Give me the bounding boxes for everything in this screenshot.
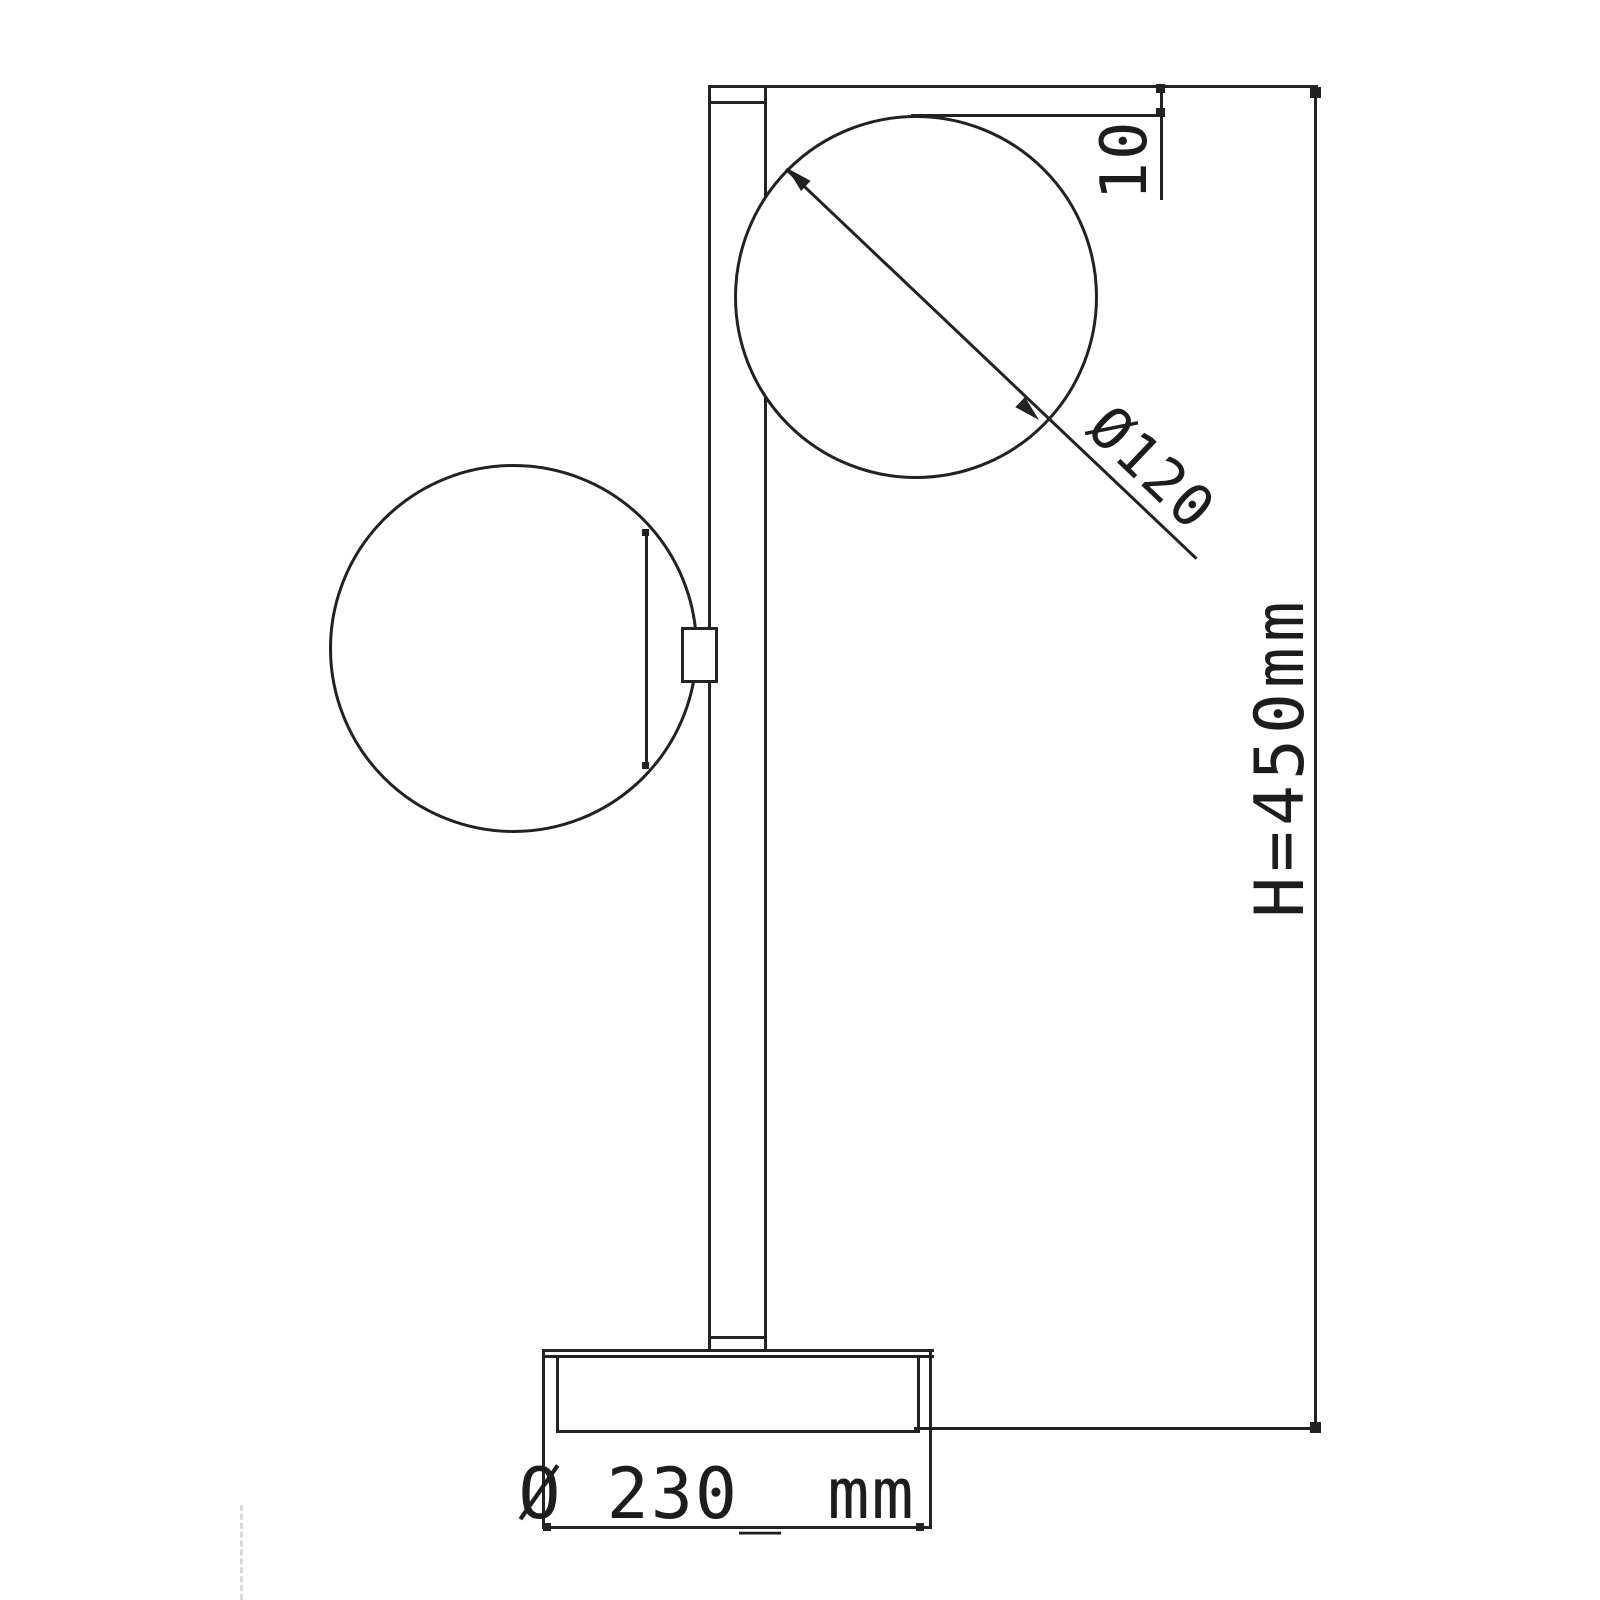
lower-globe [329, 464, 698, 833]
base-body [556, 1355, 920, 1433]
globe-connector [681, 627, 718, 683]
pole-bottom-cap-line [708, 1336, 767, 1339]
chord-end-tick-bottom [642, 762, 649, 769]
chord-end-tick-top [642, 529, 649, 536]
dim-label-globe-diameter: Ø120 [1037, 357, 1267, 579]
drawing-canvas: 10 Ø120 H=450mm Ø 230_ mm [0, 0, 1600, 1600]
scan-artifact-dashes [240, 1505, 243, 1600]
dim-label-overall-height: H=450mm [1246, 532, 1316, 982]
dim-label-top-offset: 10 [1092, 75, 1158, 245]
base-bottom-extension-line [914, 1427, 1317, 1430]
lower-globe-chord-line [645, 532, 648, 768]
dim-tick-height-top [1310, 87, 1321, 98]
pole-top-cap-line [708, 101, 767, 104]
top-extension-line [708, 85, 1318, 88]
dim-label-base-diameter: Ø 230_ mm [437, 1458, 997, 1530]
base-plate-top-line [542, 1349, 934, 1352]
